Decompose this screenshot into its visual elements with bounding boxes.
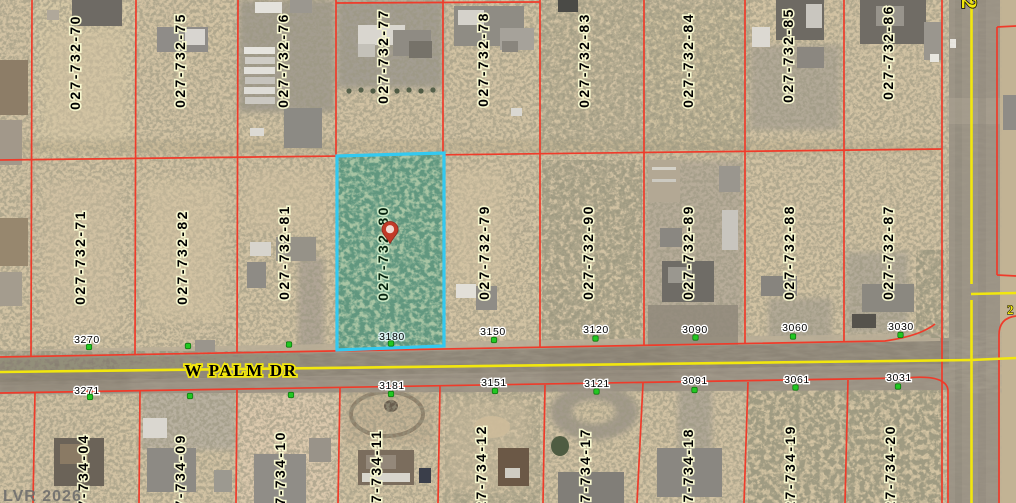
svg-text:3091: 3091 <box>682 375 708 387</box>
svg-text:3121: 3121 <box>584 378 610 390</box>
svg-text:027-732-75: 027-732-75 <box>172 12 188 108</box>
svg-text:027-732-71: 027-732-71 <box>72 209 88 305</box>
svg-text:3061: 3061 <box>784 374 810 386</box>
svg-text:3150: 3150 <box>480 326 506 338</box>
svg-text:027-734-11: 027-734-11 <box>368 429 384 503</box>
svg-text:027-732-76: 027-732-76 <box>275 12 291 108</box>
svg-text:027-732-77: 027-732-77 <box>375 8 391 104</box>
svg-text:3120: 3120 <box>583 324 609 336</box>
svg-text:027-734-17: 027-734-17 <box>577 427 593 503</box>
svg-text:2: 2 <box>957 0 982 9</box>
svg-text:027-734-10: 027-734-10 <box>272 430 288 503</box>
svg-text:027-732-88: 027-732-88 <box>781 204 797 300</box>
svg-text:027-732-81: 027-732-81 <box>276 204 292 300</box>
svg-text:LVR 2026: LVR 2026 <box>3 488 82 503</box>
svg-text:3151: 3151 <box>481 377 507 389</box>
svg-text:027-732-78: 027-732-78 <box>475 11 491 107</box>
svg-text:2: 2 <box>1007 302 1014 317</box>
svg-text:027-732-79: 027-732-79 <box>476 204 492 300</box>
svg-text:027-732-90: 027-732-90 <box>580 204 596 300</box>
svg-text:027-732-85: 027-732-85 <box>780 7 796 103</box>
svg-text:027-734-12: 027-734-12 <box>473 424 489 503</box>
svg-text:027-732-89: 027-732-89 <box>680 204 696 300</box>
svg-text:3031: 3031 <box>886 372 912 384</box>
svg-text:027-734-20: 027-734-20 <box>882 424 898 503</box>
svg-text:027-734-19: 027-734-19 <box>782 424 798 503</box>
svg-text:027-732-82: 027-732-82 <box>174 209 190 305</box>
svg-text:3030: 3030 <box>888 321 914 333</box>
svg-text:3090: 3090 <box>682 324 708 336</box>
svg-text:027-732-84: 027-732-84 <box>680 12 696 108</box>
svg-text:027-732-70: 027-732-70 <box>67 14 83 110</box>
svg-text:027-734-18: 027-734-18 <box>680 427 696 503</box>
svg-text:3060: 3060 <box>782 322 808 334</box>
svg-text:027-732-86: 027-732-86 <box>880 4 896 100</box>
svg-text:027-732-83: 027-732-83 <box>576 12 592 108</box>
svg-text:W PALM DR: W PALM DR <box>185 361 298 380</box>
svg-text:3181: 3181 <box>379 380 405 392</box>
svg-text:027-732-87: 027-732-87 <box>880 204 896 300</box>
svg-text:027-732-80: 027-732-80 <box>375 205 391 301</box>
svg-text:027-734-09: 027-734-09 <box>172 433 188 503</box>
